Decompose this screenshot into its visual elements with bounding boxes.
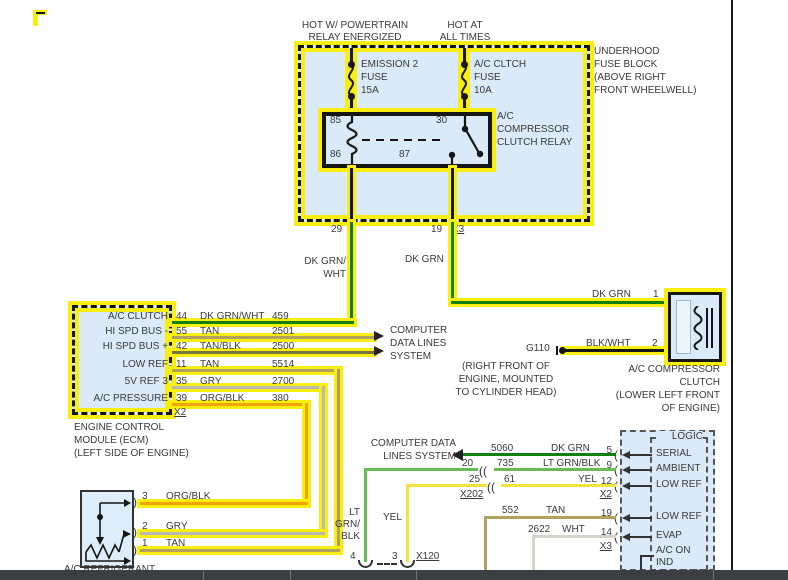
circuit-number: 552: [502, 505, 519, 516]
ecm-row-label: HI SPD BUS +: [76, 341, 168, 352]
ground-symbol: [556, 346, 558, 355]
fuse-symbol: [343, 64, 359, 96]
clutch-name: CLUTCH: [560, 377, 720, 388]
logic-row-label: LOW REF: [656, 511, 702, 522]
logic-row-label: IND: [656, 557, 673, 568]
fuse-block-name: UNDERHOOD: [594, 46, 660, 57]
fuse-label: 10A: [474, 85, 492, 96]
ecm-row-circuit: 5514: [272, 359, 294, 370]
fuse-label: A/C CLTCH: [474, 59, 526, 70]
sensor-wire-color: ORG/BLK: [166, 491, 210, 502]
clutch-plate: [711, 308, 713, 348]
wire-color-label: YEL: [578, 474, 597, 485]
connector-arc-icon: [400, 560, 415, 568]
ecm-row-pin: 11: [176, 359, 186, 370]
fuse-block-name: FRONT WHEELWELL): [594, 85, 696, 96]
wire-2622: [532, 535, 616, 538]
ecm-row-label: A/C CLUTCH: [76, 311, 168, 322]
clutch-name: OF ENGINE): [560, 403, 720, 414]
dash-fragment: [36, 12, 45, 14]
splice-icon: ((: [487, 481, 495, 493]
pin-lead: [628, 536, 652, 538]
logic-row-label: A/C ON: [656, 545, 690, 556]
ground-location: TO CYLINDER HEAD): [440, 387, 572, 398]
ecm-name: MODULE (ECM): [74, 435, 148, 446]
fuse-block-name: FUSE BLOCK: [594, 59, 657, 70]
wire-color-label: TAN: [546, 505, 565, 516]
pin-lead: [628, 485, 652, 487]
wire-color-label: GRN/: [330, 519, 360, 530]
relay-name: CLUTCH RELAY: [497, 137, 572, 148]
relay-name: COMPRESSOR: [497, 124, 569, 135]
ecm-name: (LEFT SIDE OF ENGINE): [74, 448, 189, 459]
connector-id: X3: [594, 541, 612, 552]
clutch-body: [676, 300, 691, 354]
ecm-row-color: TAN: [200, 359, 219, 370]
data-lines-label: SYSTEM: [390, 351, 431, 362]
relay-pin: 86: [330, 149, 341, 160]
relay-name: A/C: [497, 111, 514, 122]
wire-61: [501, 484, 616, 487]
ground-dot: [559, 347, 566, 354]
ground-location: ENGINE, MOUNTED: [440, 374, 572, 385]
pin-lead: [628, 454, 652, 456]
connector-id: X120: [416, 551, 439, 562]
sensor-wire-color: TAN: [166, 538, 185, 549]
logic-row-label: LOW REF: [656, 479, 702, 490]
ground-location: (RIGHT FRONT OF: [440, 361, 572, 372]
relay-output-wire: [350, 168, 353, 222]
sensor-internals: [80, 490, 134, 568]
clutch-name: (LOWER LEFT FRONT: [560, 390, 720, 401]
ecm-row-pin: 42: [176, 341, 187, 352]
sensor-pin: 1: [142, 538, 148, 549]
ecm-row-pin: 39: [176, 393, 187, 404]
logic-row-label: EVAP: [656, 530, 682, 541]
ground-id: G110: [526, 343, 550, 354]
connector-id: X2: [174, 407, 186, 418]
ecm-row-color: DK GRN/WHT: [200, 311, 264, 322]
arrow-left-icon: [622, 514, 630, 522]
wire-dk-grn: [451, 222, 454, 304]
fuse-label: FUSE: [474, 72, 501, 83]
pin-arc-icon: ): [133, 526, 137, 538]
wire-2700: [322, 386, 325, 535]
bottom-bar-separator: [713, 570, 714, 580]
data-lines-label: DATA LINES: [390, 338, 446, 349]
wire-color-label: DK GRN: [592, 289, 631, 300]
arrow-left-icon: [622, 533, 630, 541]
wire-color-label: WHT: [300, 269, 346, 280]
ecm-row-circuit: 2700: [272, 376, 294, 387]
fuse-label: FUSE: [361, 72, 388, 83]
wire-color-label: LT GRN/BLK: [543, 458, 600, 469]
wire-552: [484, 516, 616, 519]
wire-color-label: YEL: [383, 512, 402, 523]
pin-lead: [628, 517, 652, 519]
ecm-row-color: ORG/BLK: [200, 393, 244, 404]
wire-color-label: WHT: [562, 524, 585, 535]
ecm-row-label: LOW REF: [76, 359, 168, 370]
wire-color-label: LT: [330, 507, 360, 518]
pin-arc-icon: ): [133, 496, 137, 508]
wire-dk-grn: [451, 301, 670, 304]
arrow-left-icon: [622, 482, 630, 490]
relay-pin: 85: [330, 115, 341, 126]
relay-pin: 30: [436, 115, 447, 126]
wire-color-label: DK GRN: [551, 443, 590, 454]
fuse-label: 15A: [361, 85, 379, 96]
wire-5060: [463, 453, 616, 456]
connector-id: X202: [460, 489, 483, 500]
ecm-row-color: TAN: [200, 326, 219, 337]
arrow-right-icon: [374, 331, 384, 341]
wiring-diagram-canvas: HOT W/ POWERTRAIN RELAY ENERGIZED HOT AT…: [0, 0, 788, 580]
wire-61: [406, 484, 409, 562]
clutch-plate: [706, 308, 708, 348]
ecm-row-color: TAN/BLK: [200, 341, 241, 352]
ecm-row-pin: 55: [176, 326, 187, 337]
sensor-wire-color: GRY: [166, 521, 188, 532]
wire-552: [484, 516, 487, 571]
connector-pin: 19: [431, 224, 442, 235]
wire-380: [305, 403, 308, 505]
relay-output-wire: [451, 168, 454, 222]
connector-pin: 29: [331, 224, 342, 235]
wire-dk-grn-wht: [350, 222, 353, 324]
arrow-left-icon: [622, 451, 630, 459]
ind-lead: [640, 555, 654, 557]
feed-label: ALL TIMES: [420, 32, 510, 43]
ecm-row-pin: 44: [176, 311, 187, 322]
connector-arc-icon: [358, 560, 373, 568]
feed-label: HOT AT: [420, 20, 510, 31]
ecm-row-label: 5V REF 3: [76, 376, 168, 387]
pin-arc-icon: ): [133, 544, 137, 556]
ind-lead: [640, 555, 642, 571]
wire-380: [140, 502, 308, 505]
clutch-name: A/C COMPRESSOR: [560, 364, 720, 375]
clutch-coil: [692, 306, 704, 350]
fuse-symbol: [456, 64, 472, 96]
clutch-pin: 1: [653, 289, 659, 300]
circuit-number: 5060: [491, 443, 513, 454]
data-lines-label: LINES SYSTEM: [360, 451, 456, 462]
ecm-name: ENGINE CONTROL: [74, 422, 164, 433]
sensor-pin: 3: [142, 491, 148, 502]
wire-5514: [172, 369, 340, 372]
arrow-right-icon: [374, 346, 384, 356]
data-lines-label: COMPUTER: [390, 325, 447, 336]
ecm-row-pin: 35: [176, 376, 187, 387]
splice-pin: 20: [462, 458, 473, 469]
bottom-bar-separator: [416, 570, 417, 580]
splice-icon: ((: [479, 465, 487, 477]
circuit-number: 61: [504, 474, 515, 485]
wire-color-label: DK GRN/: [300, 256, 346, 267]
fuse-block-name: (ABOVE RIGHT: [594, 72, 666, 83]
bottom-bar-separator: [203, 570, 204, 580]
wire-5514: [140, 549, 340, 552]
arrow-left-icon: [622, 466, 630, 474]
ecm-row-circuit: 2500: [272, 341, 294, 352]
wire-2700: [140, 532, 325, 535]
wire-2622: [532, 535, 535, 571]
ecm-row-color: GRY: [200, 376, 222, 387]
clutch-pin: 2: [652, 338, 658, 349]
page-border: [731, 0, 733, 571]
ecm-row-label: A/C PRESSURE: [76, 393, 168, 404]
feed-label: RELAY ENERGIZED: [290, 32, 420, 43]
bottom-bar: [0, 570, 788, 580]
logic-title: LOGIC: [658, 431, 703, 442]
logic-row-label: AMBIENT: [656, 463, 700, 474]
ecm-row-circuit: 2501: [272, 326, 294, 337]
splice-pin: 25: [469, 474, 480, 485]
circuit-number: 2622: [528, 524, 550, 535]
fuse-label: EMISSION 2: [361, 59, 418, 70]
connector-id: X2: [594, 489, 612, 500]
connector-pin: 4: [350, 551, 356, 562]
wire-735: [364, 468, 367, 562]
pin-lead: [628, 469, 652, 471]
ecm-row-circuit: 459: [272, 311, 289, 322]
ecm-row-label: HI SPD BUS -: [76, 326, 168, 337]
ecm-row-circuit: 380: [272, 393, 289, 404]
circuit-number: 735: [497, 458, 514, 469]
wire-color-label: BLK: [330, 531, 360, 542]
relay-pin: 87: [399, 149, 410, 160]
bottom-bar-separator: [290, 570, 291, 580]
sensor-pin: 2: [142, 521, 148, 532]
data-lines-label: COMPUTER DATA: [360, 438, 456, 449]
wire-color-label: BLK/WHT: [586, 338, 630, 349]
wire-color-label: DK GRN: [405, 254, 444, 265]
wire-blk-wht: [563, 349, 668, 352]
wire-2700: [172, 386, 325, 389]
connector-dashes: [377, 563, 397, 565]
feed-label: HOT W/ POWERTRAIN: [290, 20, 420, 31]
connector-pin: 3: [392, 551, 398, 562]
logic-row-label: SERIAL: [656, 448, 692, 459]
